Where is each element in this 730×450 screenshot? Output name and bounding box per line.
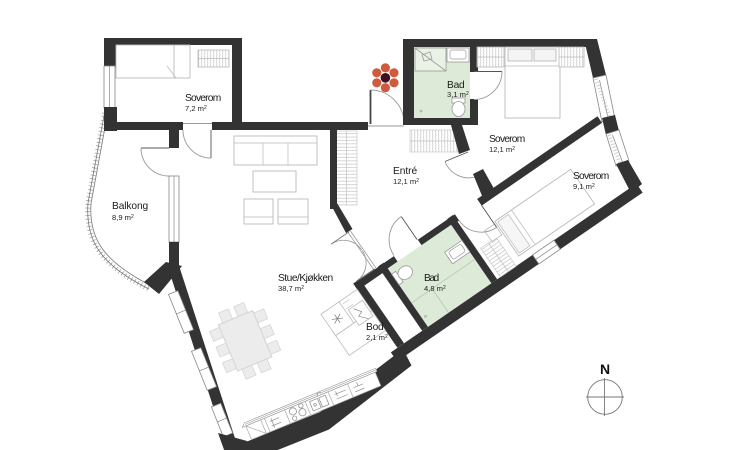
svg-text:Stue/Kjøkken: Stue/Kjøkken [278, 273, 333, 284]
svg-text:2,1 m2: 2,1 m2 [366, 333, 388, 342]
svg-text:12,1 m2: 12,1 m2 [393, 177, 419, 186]
svg-text:N: N [600, 361, 610, 377]
svg-text:Bad: Bad [424, 273, 440, 284]
svg-text:Soverom: Soverom [185, 93, 221, 104]
svg-text:Entré: Entré [393, 166, 418, 177]
svg-text:Soverom: Soverom [489, 134, 525, 145]
svg-text:Balkong: Balkong [112, 201, 149, 212]
svg-text:3,1 m2: 3,1 m2 [447, 90, 469, 99]
svg-text:8,9 m2: 8,9 m2 [112, 213, 134, 222]
svg-text:12,1 m2: 12,1 m2 [489, 145, 515, 154]
svg-text:Bod: Bod [366, 322, 384, 333]
svg-text:4,8 m2: 4,8 m2 [424, 284, 446, 293]
svg-text:38,7 m2: 38,7 m2 [278, 284, 304, 293]
svg-text:9,1 m2: 9,1 m2 [573, 182, 595, 191]
svg-text:7,2 m2: 7,2 m2 [185, 104, 207, 113]
svg-text:Soverom: Soverom [573, 171, 609, 182]
